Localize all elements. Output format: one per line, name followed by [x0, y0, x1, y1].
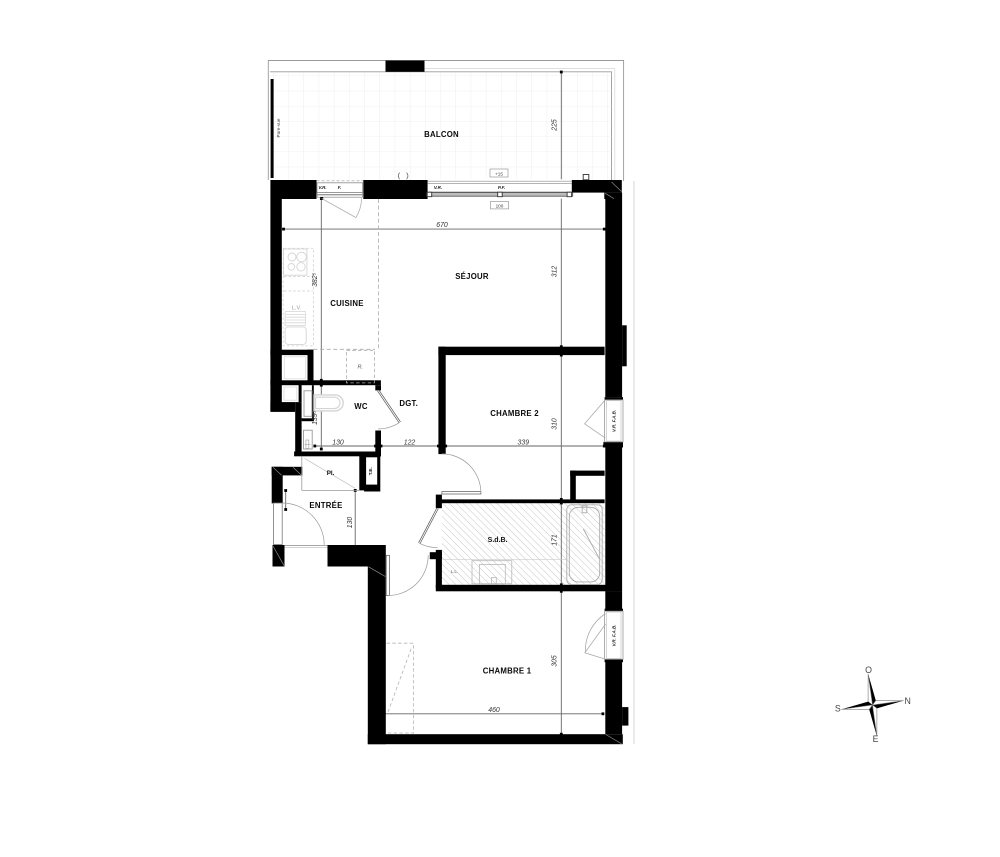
svg-text:130: 130	[347, 517, 354, 529]
svg-text:BALCON: BALCON	[424, 130, 459, 139]
svg-text:SÉJOUR: SÉJOUR	[455, 272, 489, 281]
svg-text:DGT.: DGT.	[399, 399, 418, 408]
svg-text:122: 122	[404, 439, 416, 446]
svg-text:P.F.: P.F.	[498, 185, 505, 190]
svg-text:L.V.: L.V.	[292, 306, 302, 312]
svg-text:E: E	[873, 734, 879, 744]
svg-text:R.: R.	[358, 364, 364, 370]
svg-text:CUISINE: CUISINE	[330, 299, 363, 308]
svg-text:T.E.: T.E.	[368, 467, 373, 475]
svg-text:Pare-vue: Pare-vue	[276, 118, 281, 137]
svg-text:312: 312	[552, 266, 559, 278]
svg-text:670: 670	[436, 222, 448, 229]
svg-text:225: 225	[552, 119, 559, 132]
svg-text:V.R. F.A.B.: V.R. F.A.B.	[612, 624, 617, 646]
svg-text:100: 100	[496, 203, 504, 208]
svg-text:CHAMBRE 1: CHAMBRE 1	[483, 667, 532, 676]
svg-text:CHAMBRE 2: CHAMBRE 2	[490, 409, 539, 418]
svg-text:339: 339	[518, 439, 530, 446]
svg-text:ENTRÉE: ENTRÉE	[309, 501, 342, 510]
svg-text:Pl.: Pl.	[327, 470, 335, 477]
svg-text:S: S	[835, 704, 841, 714]
svg-text:V.R.: V.R.	[434, 185, 442, 190]
svg-text:V.R.: V.R.	[318, 185, 326, 190]
svg-text:+15: +15	[495, 171, 503, 176]
svg-text:305: 305	[552, 655, 559, 667]
svg-text:N: N	[905, 696, 911, 706]
svg-text:S.d.B.: S.d.B.	[488, 537, 508, 544]
svg-text:310: 310	[552, 418, 559, 430]
svg-text:L.L.: L.L.	[451, 569, 459, 574]
svg-text:V.R. F.A.B.: V.R. F.A.B.	[612, 410, 617, 432]
svg-text:130: 130	[332, 439, 344, 446]
svg-text:460: 460	[488, 707, 500, 714]
svg-text:F.: F.	[338, 185, 342, 190]
svg-text:O: O	[865, 665, 872, 675]
svg-text:WC: WC	[354, 402, 368, 411]
svg-text:171: 171	[552, 534, 559, 546]
